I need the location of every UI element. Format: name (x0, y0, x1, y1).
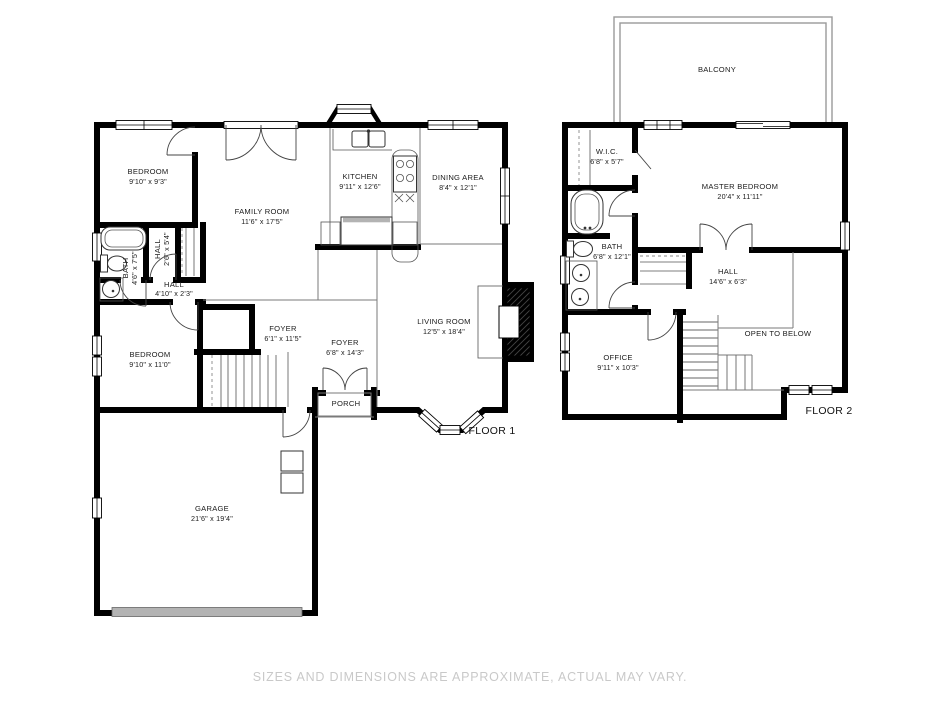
bedroom2-window-b (93, 357, 102, 376)
room-dims-bedroom-top: 9'10" x 9'3" (129, 177, 167, 186)
room-dims-wic: 6'8" x 5'7" (590, 157, 624, 166)
living-bay-window-front (440, 426, 460, 435)
office-door (648, 312, 676, 340)
room-dims-foyer-right: 6'8" x 14'3" (326, 348, 364, 357)
room-dims-bath1: 4'6" x 7'5" (130, 251, 139, 285)
floor2-label: FLOOR 2 (805, 405, 852, 417)
kitchen-bay-window (337, 105, 371, 114)
bathtub-icon (101, 227, 146, 250)
family-closet-doors (226, 125, 296, 160)
office-window-b (561, 353, 570, 371)
room-label-master-bedroom: MASTER BEDROOM (702, 182, 779, 191)
peninsula-counter-top (343, 218, 390, 223)
floor2-walls (565, 125, 845, 420)
bedroom-window (116, 121, 172, 130)
room-dims-hall2: 14'6" x 6'3" (709, 277, 747, 286)
kitchen-sink-icon (352, 129, 385, 147)
room-label-porch: PORCH (332, 399, 361, 408)
room-dims-master-bedroom: 20'4" x 11'11" (717, 192, 762, 201)
room-dims-garage: 21'6" x 19'4" (191, 514, 233, 523)
floor2-labels: BALCONY W.I.C. 6'8" x 5'7" MASTER BEDROO… (590, 65, 852, 417)
disclaimer-text: SIZES AND DIMENSIONS ARE APPROXIMATE, AC… (253, 670, 688, 684)
floor1-label: FLOOR 1 (468, 425, 515, 437)
stove-icon (394, 156, 417, 202)
room-label-bedroom-top: BEDROOM (128, 167, 169, 176)
hall2-closet (640, 256, 686, 284)
bedroom2-window-a (93, 336, 102, 355)
balcony-slider-door (736, 122, 790, 129)
room-dims-bath2: 6'8" x 12'1" (593, 252, 631, 261)
hall-closet-shelves (182, 228, 194, 276)
fireplace (478, 282, 534, 362)
garage-entry-door (283, 410, 310, 437)
floor1-labels: BEDROOM 9'10" x 9'3" FAMILY ROOM 11'6" x… (121, 167, 516, 523)
floor-plan-svg: BEDROOM 9'10" x 9'3" FAMILY ROOM 11'6" x… (0, 0, 941, 705)
room-label-hall2: HALL (718, 267, 738, 276)
open-to-below-boundary (718, 252, 793, 328)
bedroom2-door (170, 302, 198, 330)
bedroom1-door (167, 127, 195, 155)
room-dims-family-room: 11'6" x 17'5" (241, 217, 283, 226)
room-label-foyer-left: FOYER (269, 324, 297, 333)
vanity2-icon (566, 261, 597, 310)
notch-window-b (812, 386, 832, 395)
bath2-door-lower (609, 282, 635, 308)
room-dims-bedroom-bottom: 9'10" x 11'0" (129, 360, 171, 369)
dryer-icon (281, 473, 303, 493)
master-window-top (644, 121, 682, 130)
room-label-hall-small: HALL (153, 239, 162, 259)
room-label-kitchen: KITCHEN (342, 172, 377, 181)
room-label-wic: W.I.C. (596, 147, 618, 156)
toilet2-icon (567, 241, 593, 257)
garage-window (93, 498, 102, 518)
room-dims-office: 9'11" x 10'3" (597, 363, 639, 372)
bathtub2-icon (571, 190, 603, 234)
master-french-doors (700, 224, 752, 250)
room-dims-hall-small: 2'6" x 5'4" (162, 232, 171, 266)
washer-icon (281, 451, 303, 471)
bath2-door-upper (609, 190, 635, 216)
stairs-floor2 (683, 315, 784, 390)
room-label-open-to-below: OPEN TO BELOW (745, 329, 812, 338)
room-dims-dining-area: 8'4" x 12'1" (439, 183, 477, 192)
room-label-foyer-right: FOYER (331, 338, 359, 347)
room-label-bath2: BATH (602, 242, 623, 251)
porch-french-doors (323, 368, 367, 390)
wic-rod (579, 130, 590, 185)
room-label-family-room: FAMILY ROOM (235, 207, 290, 216)
dining-window (428, 121, 478, 130)
master-window-right (841, 222, 850, 250)
room-label-bath1: BATH (121, 258, 130, 279)
room-dims-living-room: 12'5" x 18'4" (423, 327, 465, 336)
floor1-plan: BEDROOM 9'10" x 9'3" FAMILY ROOM 11'6" x… (93, 105, 535, 617)
dining-side-window (501, 168, 510, 224)
kitchen-peninsula (321, 217, 417, 245)
room-dims-kitchen: 9'11" x 12'6" (339, 182, 381, 191)
floorplan-canvas: BEDROOM 9'10" x 9'3" FAMILY ROOM 11'6" x… (0, 0, 941, 705)
room-label-dining-area: DINING AREA (432, 173, 484, 182)
garage-door (112, 608, 302, 617)
room-dims-foyer-left: 6'1" x 11'5" (264, 334, 302, 343)
stairs-floor1 (212, 355, 276, 407)
room-label-office: OFFICE (603, 353, 632, 362)
notch-window-a (789, 386, 809, 395)
office-window-a (561, 333, 570, 351)
room-label-living-room: LIVING ROOM (417, 317, 470, 326)
living-bay-window-left (419, 409, 443, 432)
room-label-balcony: BALCONY (698, 65, 736, 74)
bath2-window (561, 256, 570, 284)
room-dims-hall: 4'10" x 2'3" (155, 289, 193, 298)
wic-door (635, 150, 651, 169)
room-label-bedroom-bottom: BEDROOM (130, 350, 171, 359)
room-label-hall: HALL (164, 280, 184, 289)
room-label-garage: GARAGE (195, 504, 229, 513)
floor2-plan: BALCONY W.I.C. 6'8" x 5'7" MASTER BEDROO… (561, 17, 853, 420)
